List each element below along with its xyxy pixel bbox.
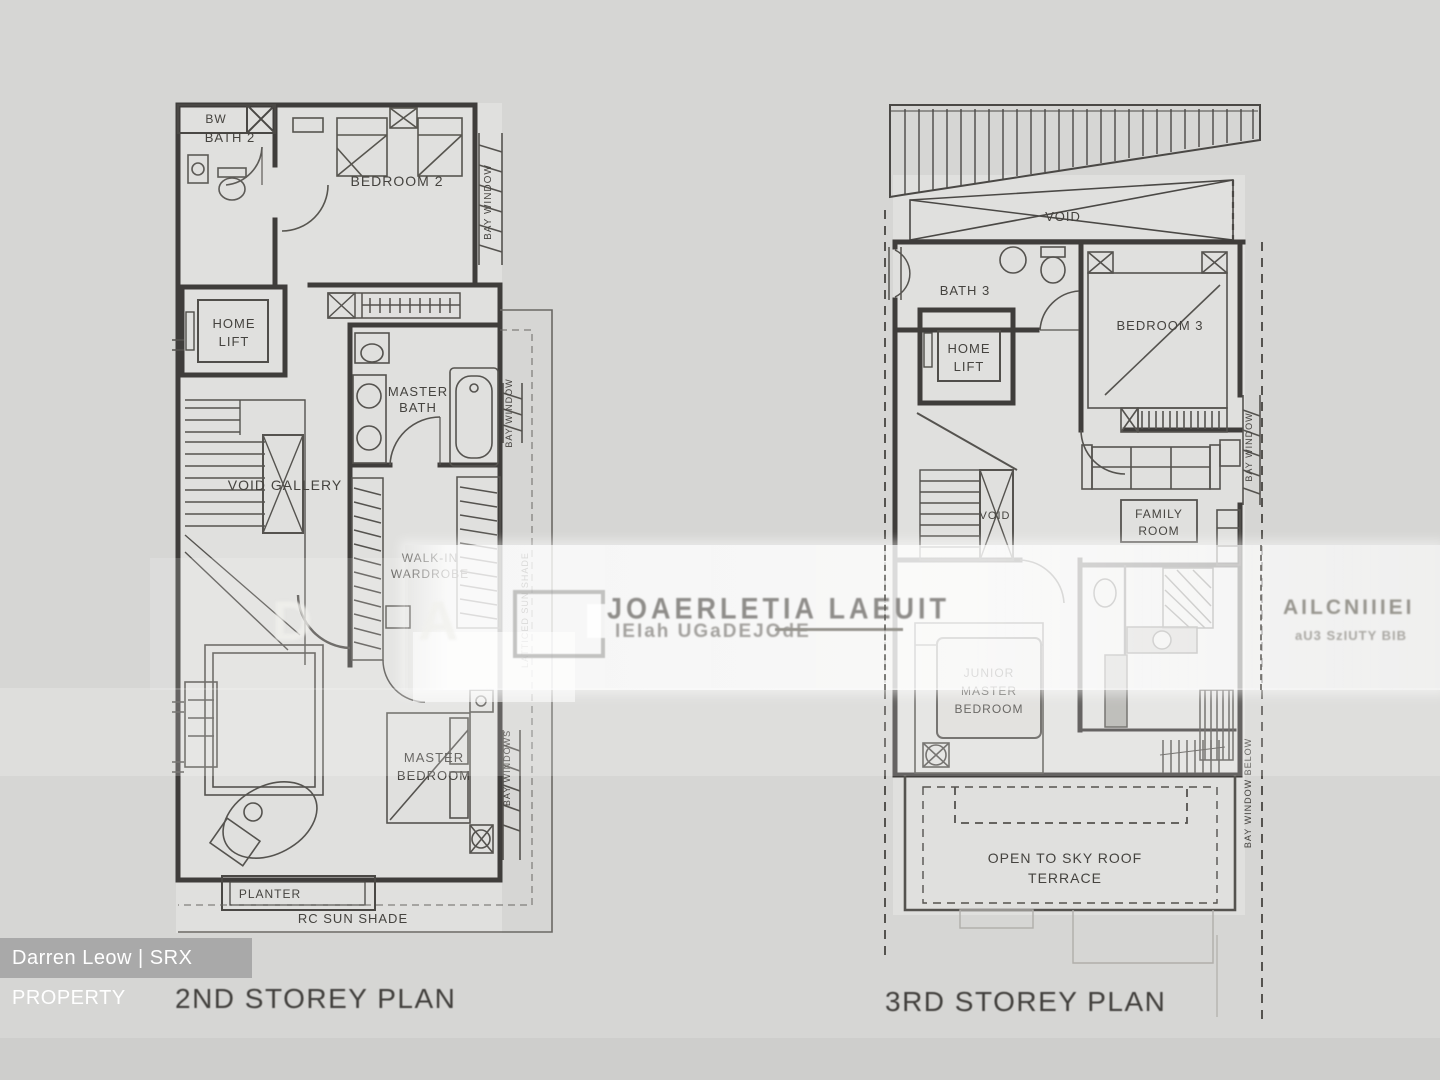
boundary-dash-overlay-right: [1260, 545, 1262, 690]
label-bedroom3: BEDROOM 3: [1116, 318, 1203, 333]
label-bay-window-bedroom2: BAY WINDOW: [483, 164, 494, 240]
watermark-center-text-2: IEIah UGaDEJOdE: [615, 621, 811, 643]
label-bay-window-bath: BAY WINDOW: [504, 378, 514, 447]
label-terrace-1: OPEN TO SKY ROOF: [988, 850, 1142, 866]
second-storey-title: 2ND STOREY PLAN: [175, 983, 456, 1015]
label-family-1: FAMILY: [1135, 507, 1183, 521]
label-terrace-2: TERRACE: [1028, 870, 1102, 886]
watermark-right-text-2: aU3 SzIUTY BIB: [1295, 628, 1407, 643]
label-bay-window: BAY WINDOW: [1244, 412, 1254, 481]
second-storey-plan: BW BATH 2 BEDROOM 2 BAY WINDOW HOME LIFT…: [150, 90, 570, 970]
third-storey-title: 3RD STOREY PLAN: [885, 986, 1166, 1018]
label-master-bath-2: BATH: [399, 400, 437, 415]
label-bath3: BATH 3: [940, 283, 991, 298]
label-bedroom2: BEDROOM 2: [350, 173, 443, 189]
label-bw: BW: [205, 112, 226, 126]
label-home-lift-1: HOME: [948, 341, 991, 356]
label-home-lift-2: LIFT: [219, 334, 250, 349]
watermark-right-text-1: AILCNIIIEI: [1283, 596, 1415, 620]
label-bath2: BATH 2: [205, 130, 256, 145]
label-master-bath-1: MASTER: [388, 384, 448, 399]
label-family-2: ROOM: [1138, 524, 1179, 538]
watermark-ghost-letters: D A: [272, 588, 504, 653]
agent-watermark-badge: Darren Leow | SRX PROPERTY: [0, 938, 252, 978]
label-rc-sun-shade: RC SUN SHADE: [298, 911, 408, 926]
boundary-dash-overlay-left: [884, 545, 886, 690]
label-void-roof: VOID: [1045, 209, 1081, 224]
label-void-stair: VOID: [980, 510, 1011, 522]
label-home-lift-1: HOME: [213, 316, 256, 331]
label-home-lift-2: LIFT: [954, 359, 985, 374]
label-void-gallery: VOID GALLERY: [228, 477, 342, 493]
label-planter: PLANTER: [239, 887, 301, 901]
watermark-logo-icon: [513, 590, 605, 658]
floorplan-image: BW BATH 2 BEDROOM 2 BAY WINDOW HOME LIFT…: [0, 0, 1440, 1080]
watermark-band-lower: [0, 688, 1440, 776]
